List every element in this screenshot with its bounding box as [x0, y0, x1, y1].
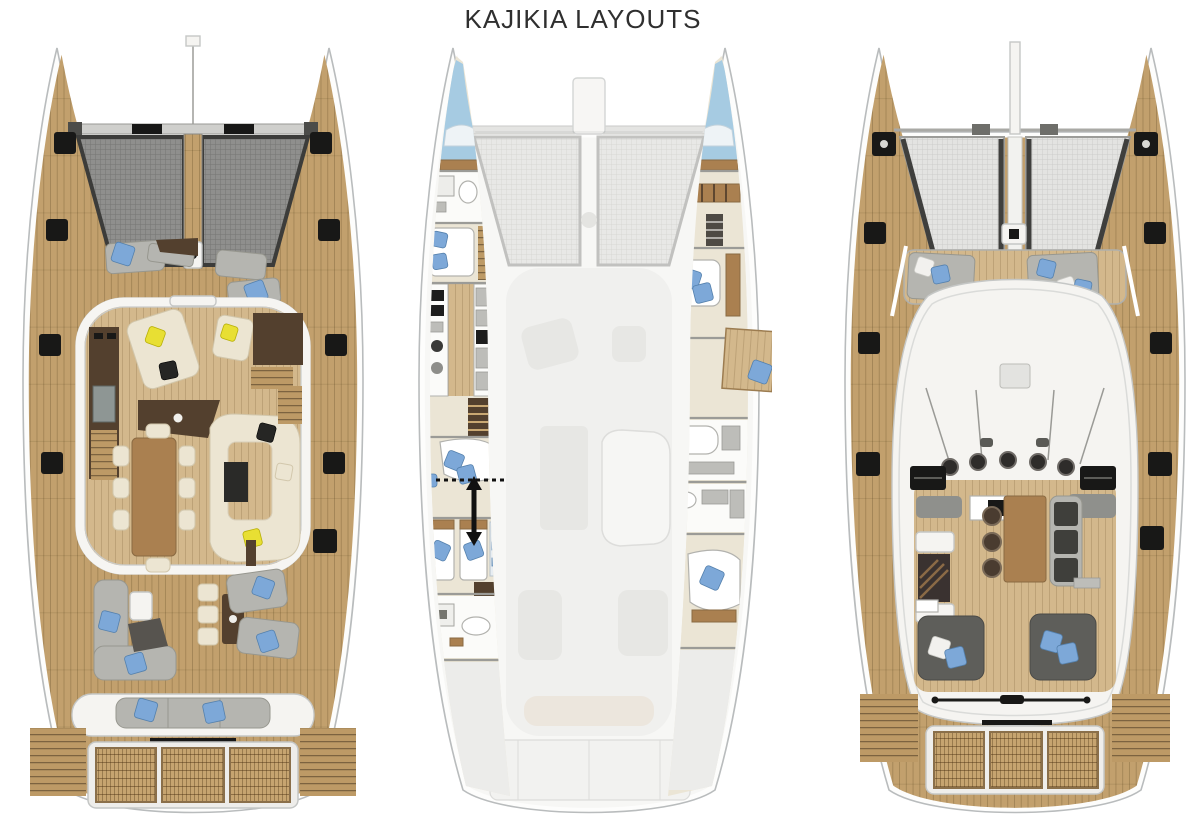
- sunpad-port: [916, 496, 962, 518]
- aft-bench: [72, 694, 314, 736]
- saloon-sofa: [210, 414, 300, 562]
- kajikia-layouts-page: { "page": { "title": "KAJIKIA LAYOUTS" }…: [0, 0, 1200, 830]
- sofa-tv: [224, 462, 248, 502]
- crossbeam: [894, 42, 1136, 135]
- swim-platform: [88, 738, 298, 808]
- mast-forestay: [186, 36, 200, 126]
- fold-out-balcony: [722, 328, 772, 391]
- upper-deck-ghost: [490, 212, 690, 800]
- stern-steps-port: [860, 694, 918, 762]
- center-walkway: [1008, 137, 1022, 267]
- stern-steps-starboard: [1112, 694, 1170, 762]
- tv-screen: [93, 386, 115, 422]
- cabin-mid-port: [424, 438, 498, 516]
- starboard-steps: [251, 367, 293, 389]
- roof-hatch: [1000, 364, 1030, 388]
- page-title: KAJIKIA LAYOUTS: [464, 4, 701, 35]
- stern-steps-starboard: [300, 728, 356, 796]
- layout-main-deck: [10, 34, 376, 826]
- crossbeam: [68, 122, 318, 135]
- layout-flybridge: [832, 34, 1198, 826]
- saloon: [76, 296, 310, 574]
- saloon-front-door: [170, 296, 216, 306]
- starboard-cabinet: [253, 313, 303, 365]
- layout-lower-deck: [406, 34, 772, 826]
- windlass: [1002, 224, 1026, 244]
- stern-steps-port: [30, 728, 86, 796]
- swim-platform: [926, 720, 1104, 794]
